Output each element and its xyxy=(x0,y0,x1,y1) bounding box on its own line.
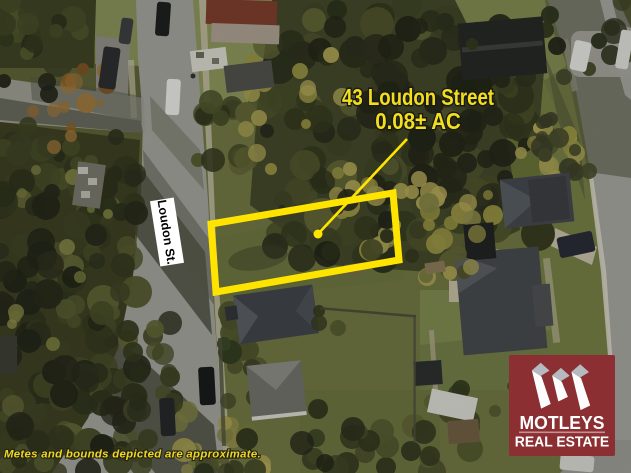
svg-text:0.08± AC: 0.08± AC xyxy=(375,108,461,134)
svg-text:MOTLEYS: MOTLEYS xyxy=(520,413,605,434)
svg-text:REAL ESTATE: REAL ESTATE xyxy=(515,434,610,451)
svg-text:43 Loudon Street: 43 Loudon Street xyxy=(342,85,494,110)
svg-text:Metes and bounds depicted are: Metes and bounds depicted are approximat… xyxy=(4,449,261,461)
